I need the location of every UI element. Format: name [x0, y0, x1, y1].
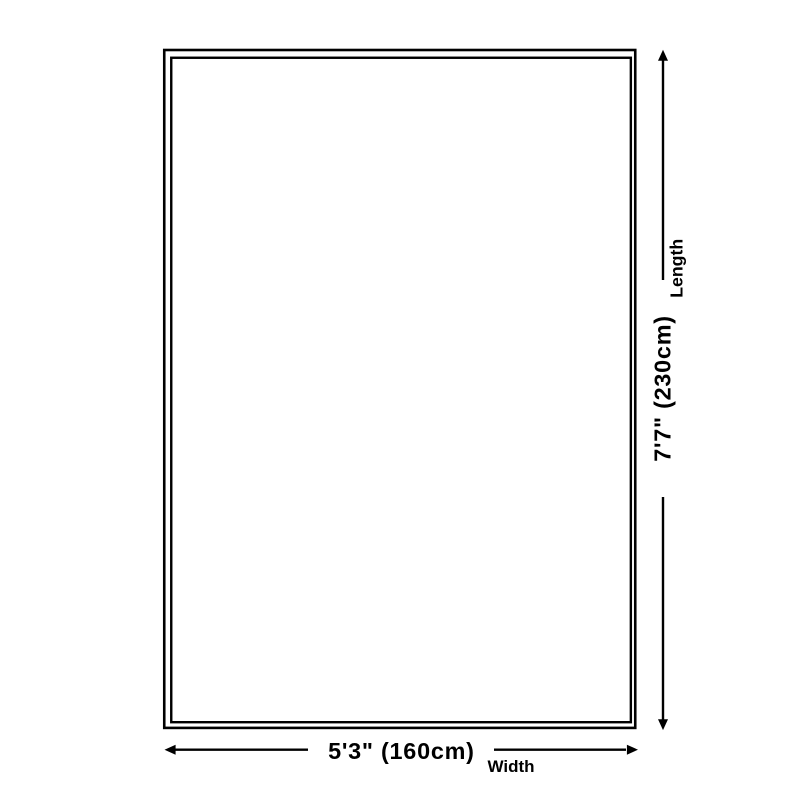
svg-text:Width: Width — [487, 757, 534, 776]
svg-text:Length: Length — [666, 239, 686, 298]
svg-text:7'7" (230cm): 7'7" (230cm) — [649, 315, 675, 462]
svg-text:5'3" (160cm): 5'3" (160cm) — [328, 738, 475, 764]
